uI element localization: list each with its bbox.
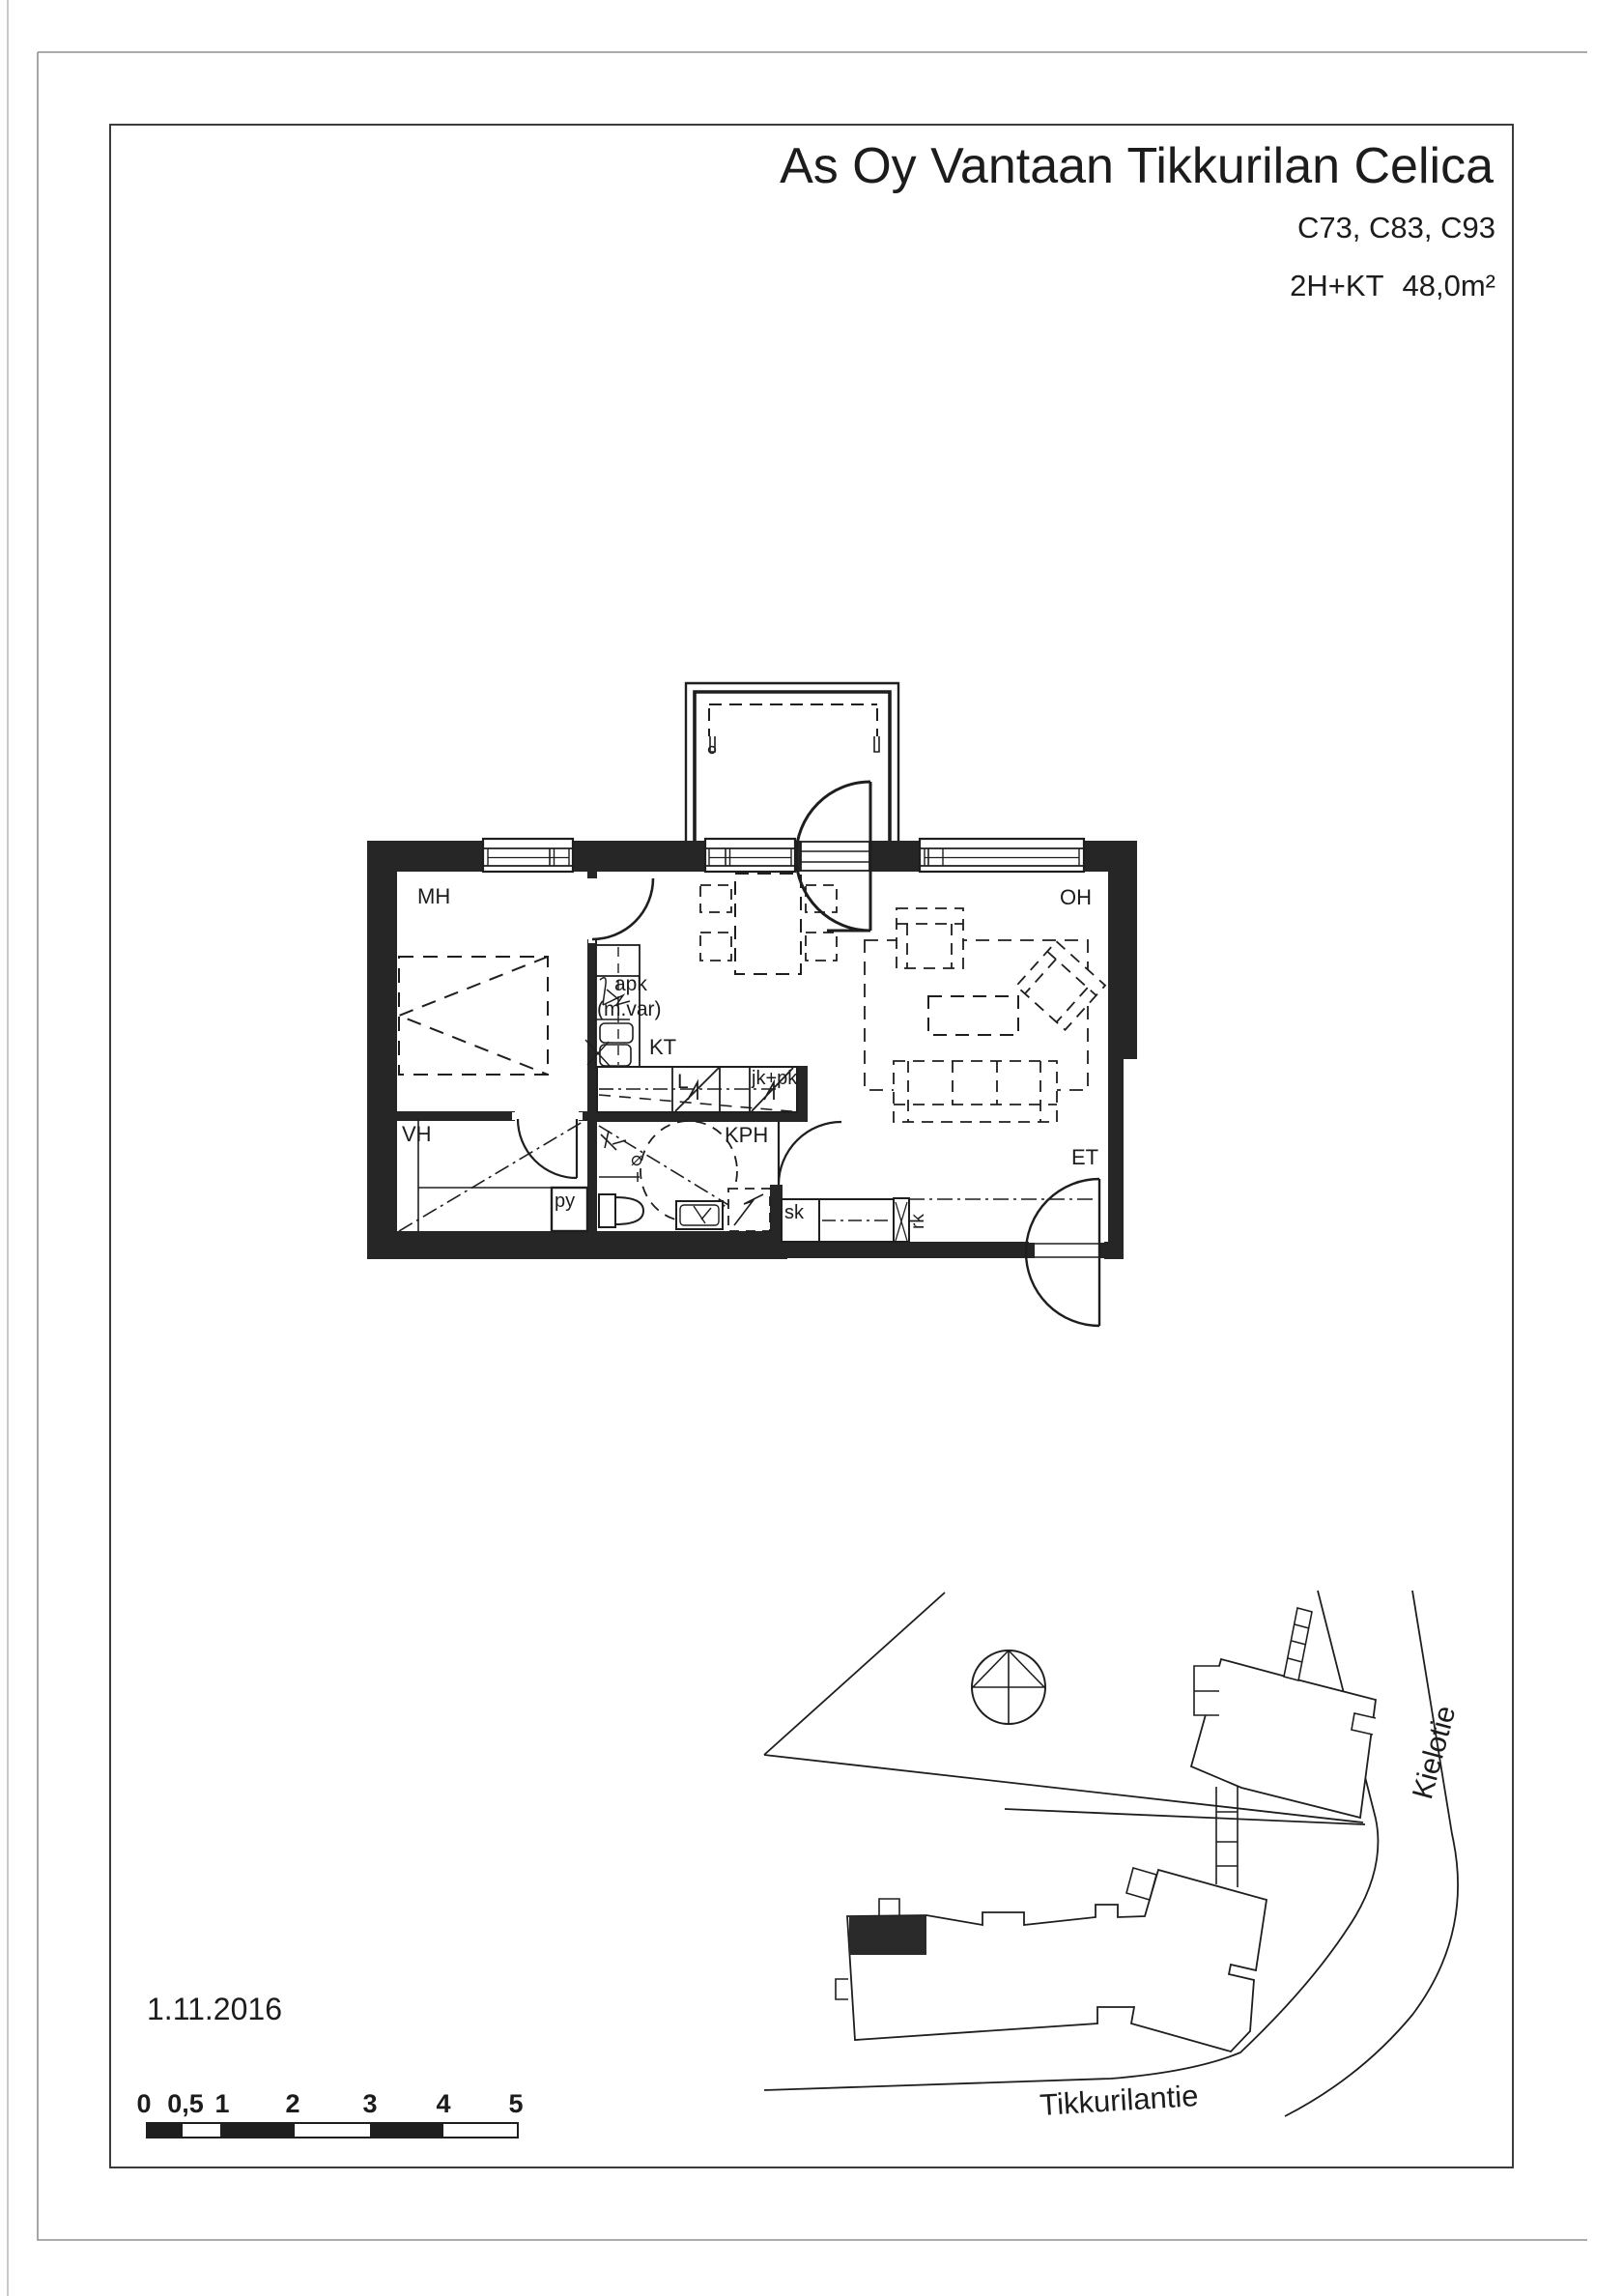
svg-text:py: py [555,1191,575,1212]
svg-text:4: 4 [436,2089,450,2118]
svg-text:ET: ET [1071,1145,1098,1169]
svg-text:sk: sk [784,1202,805,1223]
svg-text:rk: rk [908,1214,928,1229]
svg-text:0: 0 [136,2089,151,2118]
svg-text:As Oy Vantaan Tikkurilan Celic: As Oy Vantaan Tikkurilan Celica [780,138,1494,194]
svg-text:1: 1 [214,2089,229,2118]
svg-text:5: 5 [508,2089,523,2118]
svg-text:3: 3 [362,2089,377,2118]
svg-text:KT: KT [649,1035,676,1059]
svg-text:apk: apk [614,973,647,995]
svg-text:0,5: 0,5 [167,2089,204,2118]
svg-text:VH: VH [402,1122,432,1146]
svg-text:C73, C83, C93: C73, C83, C93 [1297,211,1495,244]
svg-text:jk+pk: jk+pk [751,1068,798,1089]
svg-text:MH: MH [417,884,450,908]
svg-text:2: 2 [285,2089,299,2118]
svg-text:1.11.2016: 1.11.2016 [147,1992,282,2026]
svg-text:OH: OH [1060,885,1092,909]
svg-text:(m.var): (m.var) [597,998,662,1020]
svg-text:KPH: KPH [725,1123,768,1147]
svg-text:L: L [677,1071,689,1093]
